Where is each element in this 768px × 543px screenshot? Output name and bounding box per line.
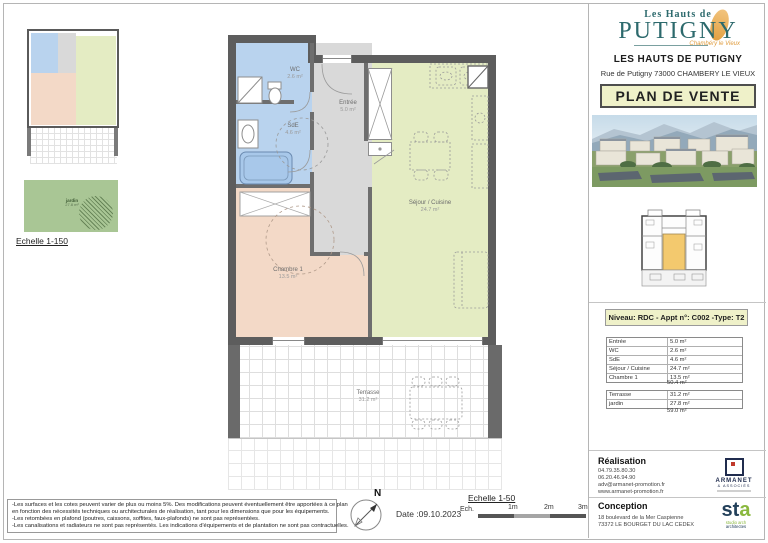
sofa	[454, 252, 488, 308]
disclaimer-box: -Les surfaces et les cotes peuvent varie…	[7, 499, 337, 533]
armanet-icon	[725, 458, 744, 476]
plan-de-vente-title: PLAN DE VENTE	[600, 84, 756, 108]
conception-address2: 73372 LE BOURGET DU LAC CEDEX	[598, 522, 694, 529]
apartment-info-title: Niveau: RDC - Appt n°: C002 -Type: T2	[605, 309, 748, 326]
scale-bar-segment	[514, 514, 550, 518]
conception-address1: 18 boulevard de la Mer Caspienne	[598, 515, 684, 522]
project-name: LES HAUTS DE PUTIGNY	[590, 54, 766, 65]
mini-plan-scale-label: Echelle 1-150	[16, 236, 68, 246]
realisation-email: adv@armanet-promotion.fr	[598, 482, 665, 489]
realisation-title: Réalisation	[598, 456, 646, 466]
mini-room-bath	[31, 33, 58, 73]
mini-room-sejour	[76, 36, 116, 125]
mini-terrasse-grid	[30, 128, 117, 164]
sta-logo: sta studio arch architectes	[710, 500, 762, 529]
table-row: Séjour / Cuisine24.7 m²	[607, 365, 742, 374]
outdoor-total: 59.0 m²	[667, 408, 687, 414]
plan-date: Date :09.10.2023	[396, 509, 461, 519]
label-sejour: Séjour / Cuisine 24.7 m²	[390, 200, 470, 214]
bathroom-fixtures	[238, 77, 281, 148]
logo-line2: PUTIGNY	[590, 18, 766, 45]
scale-title: Echelle 1-50	[468, 493, 515, 503]
plan-de-vente-sheet: jardin 27.8 m² Echelle 1-150	[0, 0, 768, 543]
armanet-logo: ARMANET & ASSOCIÉS	[708, 458, 760, 492]
section-divider	[589, 302, 766, 303]
bathtub	[240, 152, 292, 184]
table-row: Entrée5.0 m²	[607, 338, 742, 347]
rooms-total: 50.4 m²	[667, 380, 687, 386]
section-divider	[589, 450, 766, 451]
compass-icon	[348, 495, 386, 533]
mini-pillar-left	[27, 128, 31, 156]
label-entree: Entrée 5.0 m²	[318, 100, 378, 114]
mini-room-chambre	[31, 73, 76, 125]
table-row: SdE4.6 m²	[607, 356, 742, 365]
scale-2m: 2m	[544, 504, 554, 511]
conception-title: Conception	[598, 501, 648, 511]
panel-separator	[588, 4, 589, 538]
highlighted-unit-c002	[663, 234, 685, 270]
scale-bar-segment	[478, 514, 514, 518]
outdoor-area-table: Terrasse31.2 m² jardin27.8 m²	[606, 390, 743, 409]
label-sde: SdE 4.6 m²	[263, 123, 323, 137]
section-divider	[589, 497, 766, 498]
table-row: WC2.6 m²	[607, 347, 742, 356]
mini-pillar-right	[114, 128, 118, 156]
table-row: Terrasse31.2 m²	[607, 391, 742, 400]
mini-jardin-label: jardin 27.8 m²	[47, 198, 97, 208]
label-chambre: Chambre 1 13.5 m²	[248, 267, 328, 281]
table-row: jardin27.8 m²	[607, 400, 742, 408]
scale-1m: 1m	[508, 504, 518, 511]
key-plan-thumbnail	[636, 206, 712, 290]
jardin-area: 27.8 m²	[47, 203, 97, 208]
wardrobe	[240, 192, 310, 216]
project-rendering-photo	[592, 115, 757, 187]
dining-table	[410, 132, 450, 180]
terrasse-table	[410, 377, 462, 429]
project-address: Rue de Putigny 73000 CHAMBERY LE VIEUX	[590, 69, 766, 78]
realisation-phone2: 06.20.46.94.90	[598, 475, 635, 482]
rooms-area-table: Entrée5.0 m² WC2.6 m² SdE4.6 m² Séjour /…	[606, 337, 743, 383]
realisation-phone1: 04.79.35.80.30	[598, 468, 635, 475]
scale-prefix: Ech.	[460, 506, 474, 513]
label-terrasse: Terrasse 31.2 m²	[328, 390, 408, 404]
north-label: N	[374, 488, 381, 499]
label-wc: WC 2.6 m²	[265, 67, 325, 81]
scale-3m: 3m	[578, 504, 588, 511]
scale-bar-segment	[550, 514, 586, 518]
realisation-website: www.armanet-promotion.fr	[598, 489, 664, 496]
